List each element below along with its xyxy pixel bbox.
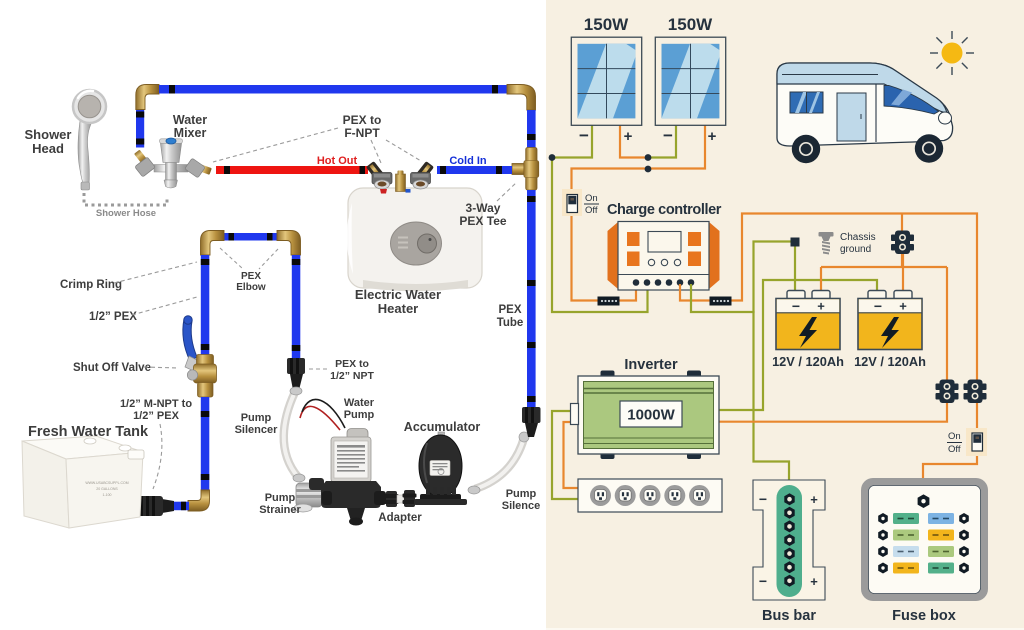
svg-text:Elbow: Elbow bbox=[236, 282, 266, 293]
svg-text:Chassis: Chassis bbox=[840, 232, 876, 243]
svg-text:Fuse box: Fuse box bbox=[892, 608, 956, 624]
svg-text:Tube: Tube bbox=[497, 317, 524, 329]
svg-text:+: + bbox=[810, 574, 818, 589]
svg-text:Cold In: Cold In bbox=[449, 155, 487, 167]
svg-text:PEX Tee: PEX Tee bbox=[459, 214, 506, 228]
svg-text:1-100: 1-100 bbox=[103, 493, 112, 497]
svg-text:−: − bbox=[874, 298, 882, 314]
svg-text:PEX to: PEX to bbox=[343, 113, 382, 127]
svg-text:1/2” M-NPT to: 1/2” M-NPT to bbox=[120, 398, 192, 410]
svg-text:−: − bbox=[759, 491, 767, 507]
svg-text:Shut Off Valve: Shut Off Valve bbox=[73, 362, 151, 374]
svg-text:Pump: Pump bbox=[344, 409, 375, 421]
svg-text:F-NPT: F-NPT bbox=[344, 126, 380, 140]
svg-text:+: + bbox=[624, 128, 633, 145]
svg-text:Pump: Pump bbox=[241, 412, 272, 424]
svg-text:12V / 120Ah: 12V / 120Ah bbox=[772, 354, 844, 369]
svg-text:Shower: Shower bbox=[25, 127, 72, 142]
svg-text:Pump: Pump bbox=[506, 488, 537, 500]
svg-text:12V / 120Ah: 12V / 120Ah bbox=[854, 354, 926, 369]
svg-text:1/2” NPT: 1/2” NPT bbox=[330, 370, 374, 382]
svg-text:Hot Out: Hot Out bbox=[317, 155, 358, 167]
svg-text:1/2” PEX: 1/2” PEX bbox=[89, 311, 137, 323]
svg-text:1000W: 1000W bbox=[627, 407, 675, 424]
svg-text:−: − bbox=[663, 126, 673, 145]
svg-text:+: + bbox=[810, 492, 818, 507]
svg-text:Accumulator: Accumulator bbox=[404, 420, 481, 434]
svg-text:150W: 150W bbox=[584, 15, 629, 34]
svg-text:Off: Off bbox=[948, 444, 961, 455]
svg-text:Water: Water bbox=[344, 397, 375, 409]
svg-text:+: + bbox=[817, 299, 825, 314]
svg-text:Fresh Water Tank: Fresh Water Tank bbox=[28, 424, 149, 440]
svg-text:Strainer: Strainer bbox=[259, 504, 301, 516]
svg-text:−: − bbox=[759, 573, 767, 589]
svg-text:+: + bbox=[899, 299, 907, 314]
svg-text:Silence: Silence bbox=[502, 500, 541, 512]
svg-text:−: − bbox=[792, 298, 800, 314]
svg-text:Off: Off bbox=[585, 205, 598, 216]
svg-text:Electric Water: Electric Water bbox=[355, 287, 441, 302]
svg-text:Adapter: Adapter bbox=[378, 512, 422, 524]
svg-text:Water: Water bbox=[173, 113, 207, 127]
svg-text:150W: 150W bbox=[668, 15, 713, 34]
svg-text:Shower Hose: Shower Hose bbox=[96, 208, 156, 219]
svg-text:Pump: Pump bbox=[265, 492, 296, 504]
svg-text:1/2” PEX: 1/2” PEX bbox=[133, 410, 180, 422]
svg-text:−: − bbox=[579, 126, 589, 145]
svg-text:ground: ground bbox=[840, 244, 871, 255]
svg-text:On: On bbox=[948, 431, 961, 442]
svg-text:Mixer: Mixer bbox=[174, 126, 207, 140]
svg-text:Crimp Ring: Crimp Ring bbox=[60, 279, 122, 291]
svg-text:Silencer: Silencer bbox=[235, 424, 279, 436]
svg-text:Bus bar: Bus bar bbox=[762, 608, 816, 624]
svg-text:Charge controller: Charge controller bbox=[607, 202, 722, 218]
svg-text:PEX to: PEX to bbox=[335, 358, 369, 370]
svg-text:WWW.USABCSUPPL.COM: WWW.USABCSUPPL.COM bbox=[85, 481, 128, 485]
svg-text:20 GALLONS: 20 GALLONS bbox=[96, 487, 118, 491]
svg-text:Inverter: Inverter bbox=[624, 357, 678, 373]
svg-text:+: + bbox=[708, 128, 717, 145]
svg-text:PEX: PEX bbox=[498, 304, 521, 316]
svg-text:PEX: PEX bbox=[241, 271, 261, 282]
svg-text:3-Way: 3-Way bbox=[466, 201, 501, 215]
svg-text:Heater: Heater bbox=[378, 301, 418, 316]
svg-text:On: On bbox=[585, 193, 598, 204]
svg-text:Head: Head bbox=[32, 141, 64, 156]
